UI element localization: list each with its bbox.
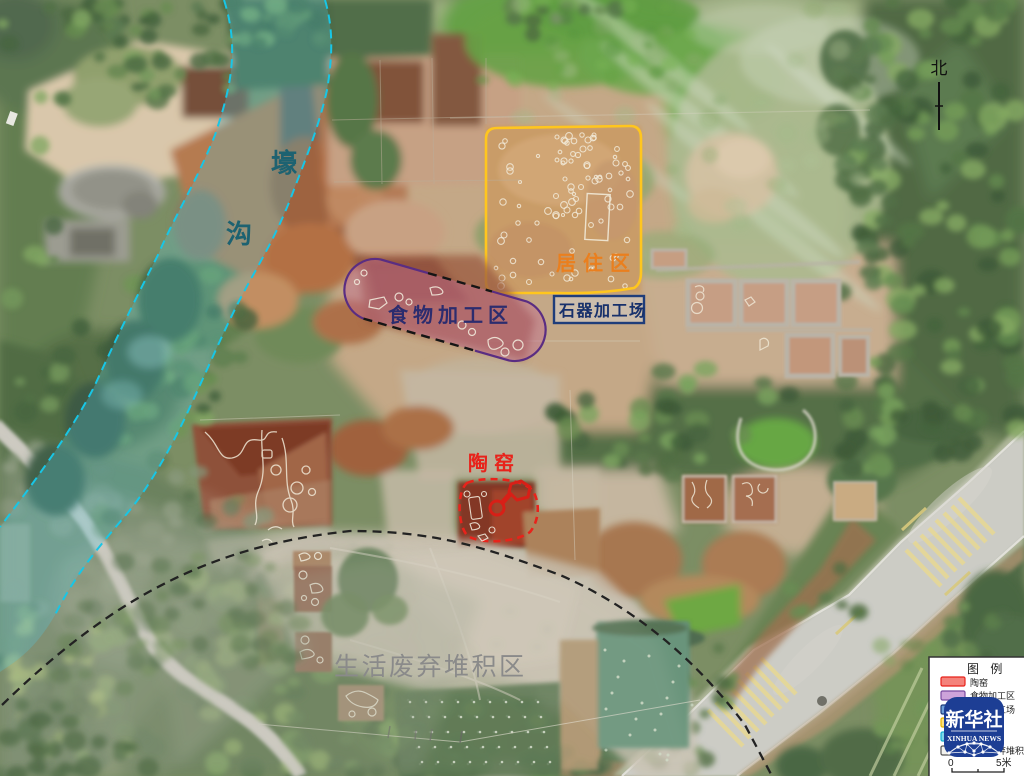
- svg-text:居住区: 居住区: [556, 251, 637, 275]
- svg-text:陶窑: 陶窑: [970, 677, 988, 688]
- svg-text:新华社: 新华社: [945, 708, 1002, 731]
- svg-text:陶窑: 陶窑: [468, 451, 520, 475]
- svg-text:沟: 沟: [226, 219, 252, 249]
- svg-text:0: 0: [948, 758, 954, 769]
- svg-text:5米: 5米: [996, 756, 1012, 769]
- svg-text:北: 北: [931, 59, 948, 78]
- svg-text:食物加工区: 食物加工区: [388, 303, 513, 327]
- svg-text:生活废弃堆积区: 生活废弃堆积区: [334, 653, 527, 681]
- svg-text:图 例: 图 例: [967, 662, 1006, 676]
- svg-text:壕: 壕: [271, 148, 298, 178]
- svg-text:石器加工场: 石器加工场: [558, 302, 647, 320]
